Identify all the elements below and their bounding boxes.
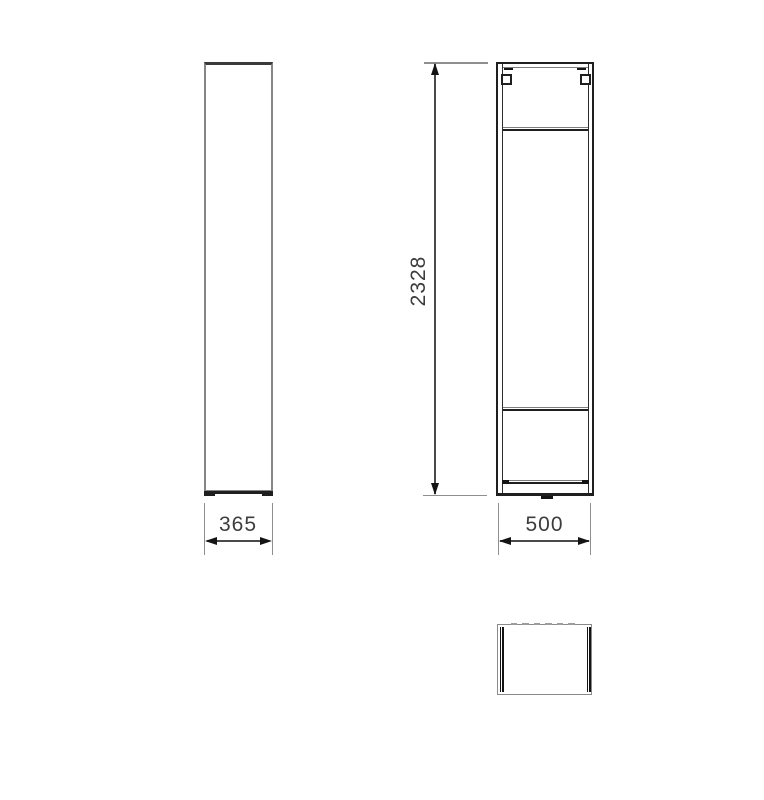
plinth-end-cap-left [502, 480, 509, 485]
hanger-bracket-right [580, 74, 591, 85]
arrowhead-right-icon [578, 537, 590, 545]
top-shelf-line-lower [503, 129, 588, 131]
front-view-top-rail-line [503, 67, 588, 68]
extension-line-right [590, 503, 591, 555]
top-view-side-panel-left-inner [502, 627, 503, 693]
front-view-top-fitting-right [577, 68, 586, 70]
top-view-back-edge-dash [511, 623, 518, 625]
top-view-back-edge-dash [534, 623, 541, 625]
hanger-bracket-left [501, 74, 512, 85]
extension-line-left [498, 503, 499, 555]
dimension-line [434, 64, 436, 494]
front-view-center-foot [541, 496, 553, 500]
top-view-side-panel-right-outer [589, 627, 590, 693]
arrowhead-left-icon [205, 537, 217, 545]
top-shelf-line-upper [503, 127, 588, 128]
dimension-label-front-height: 2328 [407, 241, 431, 321]
arrowhead-right-icon [260, 537, 272, 545]
plinth-end-cap-right [582, 480, 589, 485]
side-view-outline [204, 62, 274, 492]
bottom-shelf-line-lower [503, 409, 588, 411]
bottom-shelf-line-upper [503, 407, 588, 408]
arrowhead-left-icon [499, 537, 511, 545]
side-view-foot-right [262, 491, 274, 496]
top-view-side-panel-right-inner [587, 627, 588, 693]
extension-line-bottom [423, 495, 487, 496]
technical-drawing-canvas: 365 2328 500 [0, 0, 764, 800]
dimension-line [500, 540, 589, 542]
side-view-foot-left [204, 491, 216, 496]
top-view-back-edge-dash [545, 623, 552, 625]
dimension-label-front-width: 500 [500, 514, 589, 536]
top-view-back-edge-dash [522, 623, 529, 625]
dimension-label-side-width: 365 [198, 514, 278, 536]
top-view-side-panel-left-outer [500, 627, 501, 693]
plinth-bottom-line [503, 482, 588, 484]
front-view-top-fitting-left [504, 68, 513, 70]
top-view-outline [497, 624, 593, 696]
top-view-back-edge-dash [568, 623, 575, 625]
arrowhead-down-icon [431, 483, 439, 495]
arrowhead-up-icon [431, 63, 439, 75]
top-view-back-edge-dash [557, 623, 564, 625]
